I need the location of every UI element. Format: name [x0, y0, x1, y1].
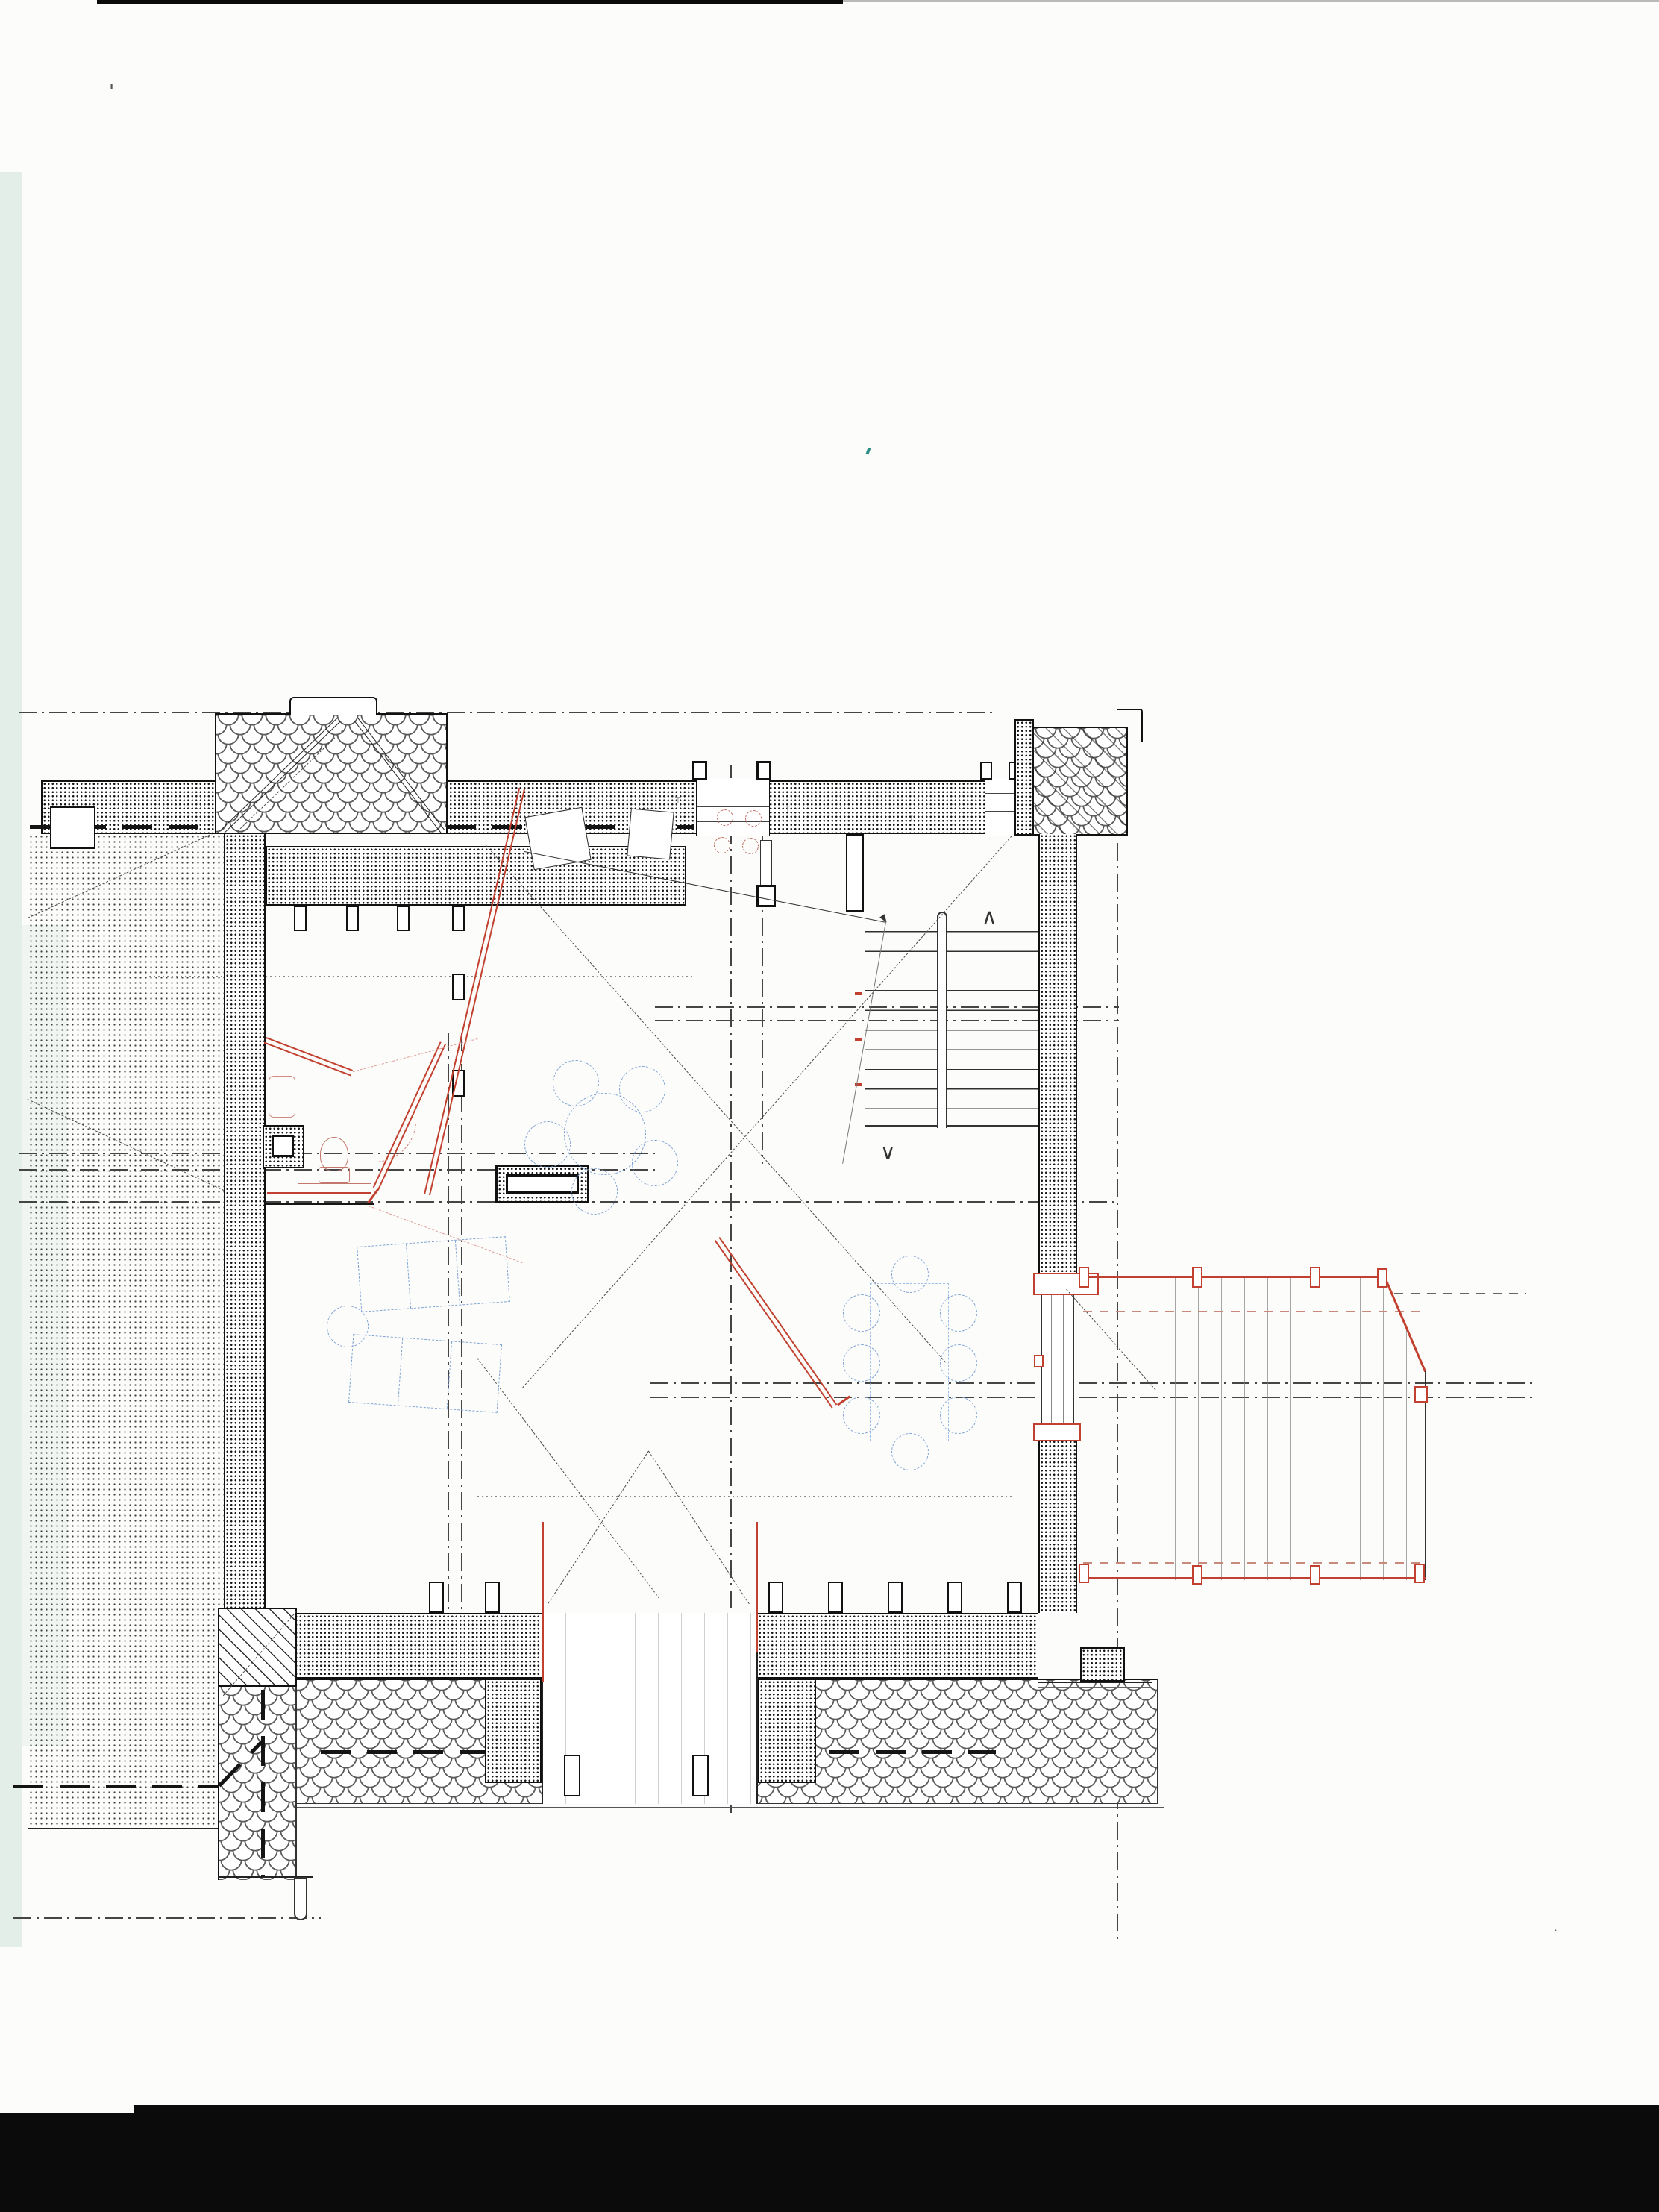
window-post	[888, 1582, 903, 1613]
deck-door-shaft	[1041, 1295, 1074, 1423]
sofa-cushion-line	[398, 1338, 403, 1406]
scan-top-edge	[97, 0, 843, 4]
balcony-post	[692, 1755, 709, 1796]
exterior-wall-bottom-left	[266, 1613, 542, 1679]
window-sill-line	[697, 806, 769, 807]
column-post-free-1	[452, 974, 465, 1000]
round-table-chair	[553, 1060, 599, 1106]
dormer-roof-top-left	[215, 713, 448, 834]
stair-handrail	[937, 912, 947, 1128]
ref-axis-bottom-left	[13, 1917, 321, 1919]
fireplace-opening	[506, 1174, 579, 1194]
staircase-treads	[865, 912, 1038, 1125]
timber-post-tall	[760, 840, 772, 886]
column-post	[346, 906, 359, 931]
window-sill-line	[985, 811, 1015, 812]
wall-return-top-right	[1014, 719, 1034, 836]
round-table-chair	[619, 1066, 665, 1112]
dining-chair	[940, 1397, 977, 1434]
balcony-hip-right	[648, 1451, 750, 1604]
deck-post	[1310, 1267, 1320, 1288]
drawing-sheet: ' ·	[0, 0, 1659, 2212]
window-sill-line	[697, 792, 769, 792]
scan-bottom-band2	[0, 2113, 1659, 2212]
window-1-jamb-left	[692, 761, 707, 780]
deck-edge-top-inner	[1083, 1288, 1386, 1288]
window-post	[485, 1582, 500, 1613]
balcony-new-edge-left	[542, 1522, 544, 1682]
dining-chair	[940, 1294, 977, 1332]
gutter-line-right2	[1038, 1687, 1152, 1688]
door-frame-line	[1063, 1295, 1064, 1423]
window-post	[947, 1582, 962, 1613]
corner-pier-bottom-right	[1080, 1647, 1125, 1682]
stair-side-wall	[846, 834, 864, 912]
deck-edge-bottom	[1083, 1577, 1426, 1579]
stool-circle	[745, 810, 762, 827]
tee-mark: ┬	[785, 801, 791, 812]
round-table-chair	[524, 1121, 571, 1168]
scan-speck-teal	[866, 448, 871, 455]
exterior-wall-right-upper	[1038, 834, 1077, 1274]
deck-surface	[1083, 1277, 1426, 1580]
reno-tick	[855, 1038, 862, 1041]
dining-chair	[891, 1256, 929, 1293]
window-post	[429, 1582, 444, 1613]
deck-edge-right	[1425, 1371, 1426, 1580]
stool-circle	[742, 838, 759, 854]
scan-top-edge-faint	[843, 0, 1659, 2]
timber-post-cap	[756, 885, 776, 907]
desk-table-a	[524, 807, 591, 870]
dormer-top-right-hatch	[1032, 727, 1128, 836]
new-wall-bath-south	[267, 1192, 371, 1194]
sofa-cushion-line	[406, 1244, 411, 1308]
column-post	[397, 906, 410, 931]
deck-extension-dash-v	[1443, 1298, 1443, 1578]
deck-post	[1310, 1565, 1320, 1585]
eave-corner-hip-piece	[218, 1608, 297, 1687]
door-frame-line	[1051, 1295, 1052, 1423]
bath-sink	[269, 1076, 295, 1118]
deck-post	[1414, 1564, 1425, 1583]
toilet-tank	[319, 1167, 350, 1183]
exterior-wall-left	[224, 834, 266, 1613]
vanity-counter-line	[298, 1183, 371, 1184]
deck-post	[1192, 1267, 1202, 1288]
tee-mark: ┬	[553, 795, 559, 806]
balcony-pier-left	[485, 1679, 542, 1783]
dining-chair	[843, 1397, 880, 1434]
sofa-1	[357, 1236, 510, 1312]
bath-south-wall-line	[266, 1203, 374, 1205]
deck-door-sill	[1033, 1423, 1081, 1441]
desk-table-b	[627, 809, 674, 860]
deck-dashed-bottom	[1083, 1562, 1426, 1564]
stool-circle	[714, 837, 730, 853]
topwall-corner-notch	[50, 806, 95, 849]
reno-tick	[855, 992, 862, 995]
balcony-pier-right	[758, 1679, 816, 1783]
ref-dotted-lower	[477, 1496, 1014, 1497]
window-post	[1007, 1582, 1022, 1613]
sofa-cushion-line	[446, 1341, 451, 1409]
deck-post	[1377, 1268, 1387, 1288]
dining-table	[870, 1283, 949, 1441]
stair-up-arrow: ∧	[982, 904, 997, 929]
chimney-flue	[272, 1135, 294, 1157]
deck-post-corner	[1414, 1386, 1428, 1403]
dining-chair	[843, 1344, 880, 1382]
deck-extension-dash-h	[1394, 1293, 1526, 1294]
new-wall-bath-north	[264, 1037, 353, 1076]
round-table-chair	[632, 1140, 678, 1186]
round-table-chair	[571, 1168, 618, 1215]
window-post	[828, 1582, 843, 1613]
column-post	[294, 906, 307, 931]
interior-wall-upper	[266, 846, 686, 906]
tee-mark: ┬	[909, 810, 915, 821]
ref-axis-top	[19, 712, 994, 713]
balcony-new-edge-right	[756, 1522, 758, 1652]
dining-chair	[843, 1294, 880, 1332]
window-1-jamb-right	[756, 761, 771, 780]
eave-left-bold-dash	[261, 1690, 265, 1876]
gutter-line-right	[1038, 1682, 1152, 1683]
tee-mark: ┬	[675, 792, 681, 803]
deck-edge-top	[1083, 1276, 1386, 1278]
window-sill-line	[985, 793, 1015, 794]
exterior-wall-right-lower	[1038, 1440, 1077, 1613]
window-top-2	[985, 778, 1016, 836]
scan-speck-right: ·	[1553, 1922, 1558, 1940]
gutter-bracket-top-right	[1117, 709, 1143, 742]
dining-chair	[891, 1433, 929, 1470]
exterior-wall-bottom-right	[758, 1613, 1038, 1679]
gutter-downspout	[294, 1877, 307, 1920]
balcony-hip-left	[548, 1450, 649, 1603]
window-top-1	[696, 778, 770, 836]
stair-down-arrow: ∨	[880, 1140, 896, 1165]
deck-post	[1079, 1564, 1089, 1583]
scan-mark-top-left: '	[109, 81, 114, 103]
column-post	[452, 906, 465, 931]
dining-chair	[940, 1344, 977, 1382]
roof-projection-diag-3	[477, 1358, 659, 1599]
window-2-jamb-left	[980, 762, 992, 780]
sofa-cushion-line	[455, 1241, 460, 1305]
window-post	[768, 1582, 783, 1613]
balcony-post	[564, 1755, 580, 1796]
sofa-2	[348, 1334, 502, 1413]
left-roof-surface	[28, 834, 224, 1829]
deck-door-handle	[1034, 1355, 1044, 1367]
staircase-bottom-line	[865, 1125, 1038, 1127]
dormer-chimney-bump	[289, 697, 377, 715]
side-table	[327, 1306, 369, 1347]
deck-post	[1192, 1565, 1202, 1585]
site-bold-dash-bottom	[13, 1785, 218, 1788]
eave-gutter-edge	[224, 1807, 1164, 1808]
stool-circle	[717, 809, 733, 826]
left-roof-plane-line	[28, 1009, 224, 1009]
deck-dashed-top	[1083, 1311, 1423, 1312]
deck-post	[1079, 1267, 1089, 1288]
